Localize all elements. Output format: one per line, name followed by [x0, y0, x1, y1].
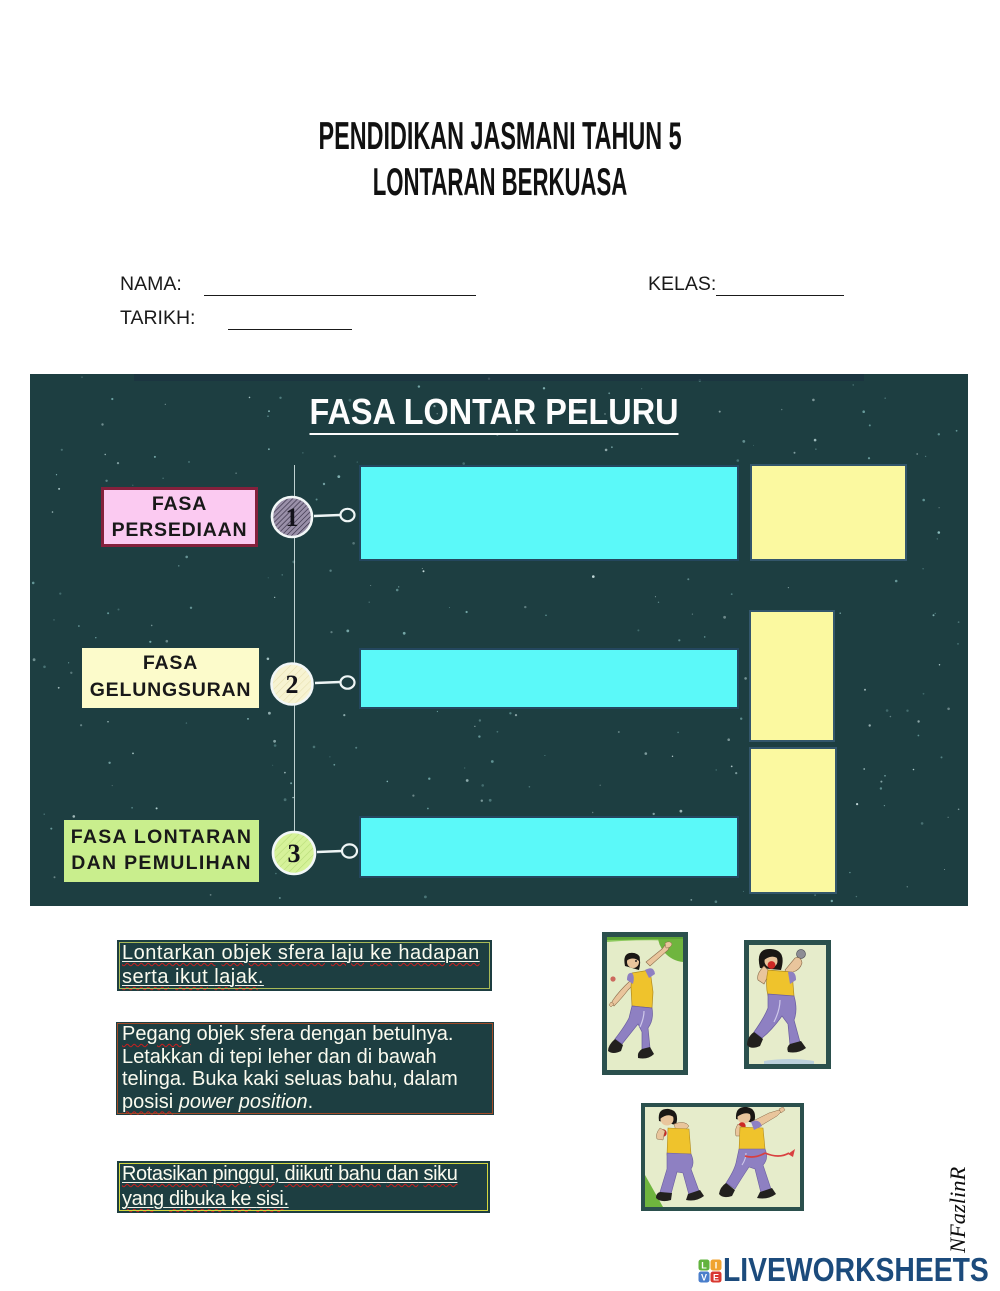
svg-text:2: 2: [286, 670, 299, 699]
svg-text:L: L: [701, 1261, 707, 1271]
svg-text:I: I: [715, 1261, 718, 1271]
svg-text:E: E: [713, 1273, 719, 1283]
svg-text:V: V: [701, 1273, 707, 1283]
svg-text:3: 3: [288, 839, 301, 868]
svg-text:1: 1: [286, 503, 299, 532]
